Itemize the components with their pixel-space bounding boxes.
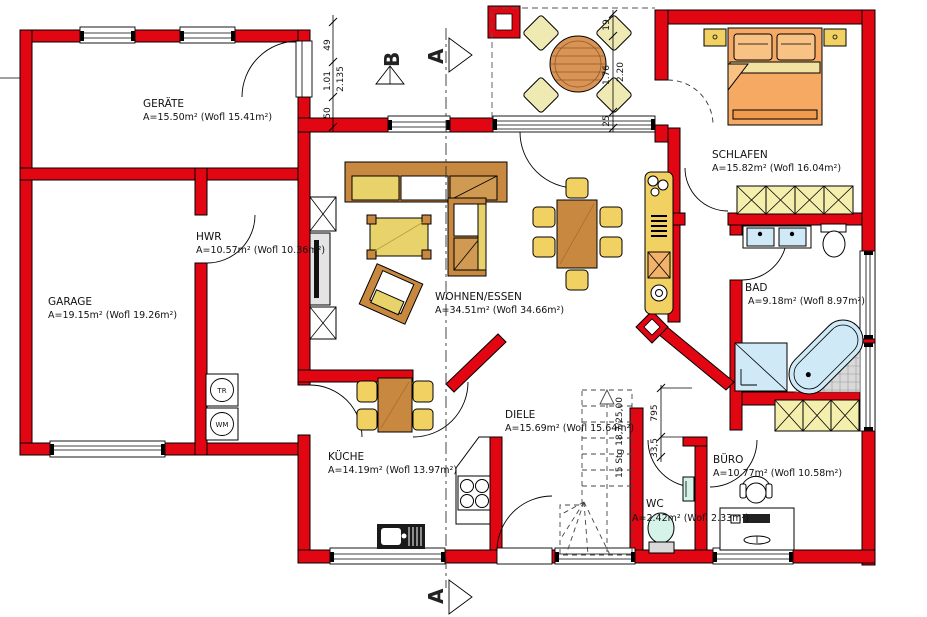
- dim-795: 795: [650, 404, 660, 421]
- tv-lowboard: [310, 233, 330, 305]
- wc-sink: [683, 477, 694, 501]
- room-name: GARAGE: [48, 296, 92, 308]
- room-area: A=15.69m² (Wofl 15.64m²): [505, 423, 634, 434]
- dining-chair: [566, 178, 588, 198]
- room-name: HWR: [196, 231, 222, 243]
- section-b-label: B: [380, 52, 404, 67]
- room-area: A=2.42m² (Wofl 2.33m²): [632, 513, 749, 524]
- office-closet: [775, 400, 859, 431]
- patio-glass-front: [493, 116, 655, 132]
- dim-101: 1.01: [323, 71, 333, 91]
- room-name: BÜRO: [713, 453, 743, 466]
- section-marker-b-top: B: [376, 52, 404, 84]
- kitchen-sink: [377, 524, 425, 549]
- kitchen-chair: [413, 409, 433, 430]
- dim-335: 33,5: [650, 438, 660, 458]
- washing-machine: WM: [206, 408, 238, 440]
- floor-plan-drawing: TR WM 15 Stg 18,7/25,00 49 1.01 2.135 50: [0, 0, 927, 617]
- double-bed: [728, 28, 822, 125]
- dryer: TR: [206, 374, 238, 406]
- coffee-table: [367, 215, 431, 259]
- dining-chair: [600, 237, 622, 257]
- dining-chair: [566, 270, 588, 290]
- stove-cooktop: [458, 476, 490, 510]
- room-area: A=15.50m² (Wofl 15.41m²): [143, 112, 272, 123]
- room-name: KÜCHE: [328, 450, 364, 463]
- vanity-double-sink: [743, 226, 811, 248]
- room-area: A=34.51m² (Wofl 34.66m²): [435, 305, 564, 316]
- dining-chair: [600, 207, 622, 227]
- shower: [735, 343, 787, 391]
- plant-icon: [648, 176, 658, 186]
- room-area: A=10.57m² (Wofl 10.36m²): [196, 245, 325, 256]
- kitchen-chair: [357, 409, 377, 430]
- room-area: A=15.82m² (Wofl 16.04m²): [712, 163, 841, 174]
- pillow: [777, 34, 815, 60]
- room-name: WOHNEN/ESSEN: [435, 291, 522, 303]
- room-name: BAD: [745, 282, 767, 294]
- dim-25: 25: [602, 115, 612, 126]
- stairs-note: 15 Stg 18,7/25,00: [615, 397, 625, 478]
- dim-2135: 2.135: [336, 66, 346, 92]
- window-diele: [555, 548, 635, 564]
- floor-plan-page: TR WM 15 Stg 18,7/25,00 49 1.01 2.135 50: [0, 0, 927, 617]
- window-kitchen: [330, 548, 445, 564]
- sofa: [345, 162, 507, 202]
- dining-chair: [533, 237, 555, 257]
- window-geraete-1: [80, 27, 135, 43]
- washer-label: WM: [216, 421, 229, 429]
- room-name: SCHLAFEN: [712, 149, 768, 161]
- window-wohnen-top: [388, 116, 450, 132]
- dim-49: 49: [323, 39, 333, 51]
- wardrobe: [737, 186, 853, 214]
- room-name: WC: [646, 498, 664, 510]
- section-a-label: A: [424, 48, 448, 64]
- section-a-label-bottom: A: [424, 588, 448, 604]
- patio-table: [550, 36, 606, 92]
- nightstand: [824, 29, 846, 46]
- dim-220: 2.20: [616, 62, 626, 82]
- kachelofen-sideboard: [645, 172, 673, 314]
- entrance-opening: [497, 548, 552, 564]
- room-name: DIELE: [505, 409, 535, 421]
- room-area: A=10.77m² (Wofl 10.58m²): [713, 468, 842, 479]
- dim-50: 50: [323, 107, 333, 119]
- door-opening-geraete-side: [296, 41, 312, 97]
- room-area: A=19.15m² (Wofl 19.26m²): [48, 310, 177, 321]
- window-bad-2: [860, 343, 875, 431]
- garage-door: [50, 441, 165, 457]
- dim-176: 1.76: [602, 65, 612, 85]
- room-name: GERÄTE: [143, 97, 184, 110]
- dining-chair: [533, 207, 555, 227]
- room-area: A=14.19m² (Wofl 13.97m²): [328, 465, 457, 476]
- dryer-label: TR: [216, 387, 226, 395]
- window-bad-1: [860, 251, 875, 339]
- window-geraete-2: [180, 27, 235, 43]
- kitchen-chair: [413, 381, 433, 402]
- loveseat: [448, 198, 486, 276]
- pillow: [734, 34, 772, 60]
- dim-19: 19: [602, 19, 612, 31]
- nightstand: [704, 29, 726, 46]
- kitchen-chair: [357, 381, 377, 402]
- room-area: A=9.18m² (Wofl 8.97m²): [748, 296, 865, 307]
